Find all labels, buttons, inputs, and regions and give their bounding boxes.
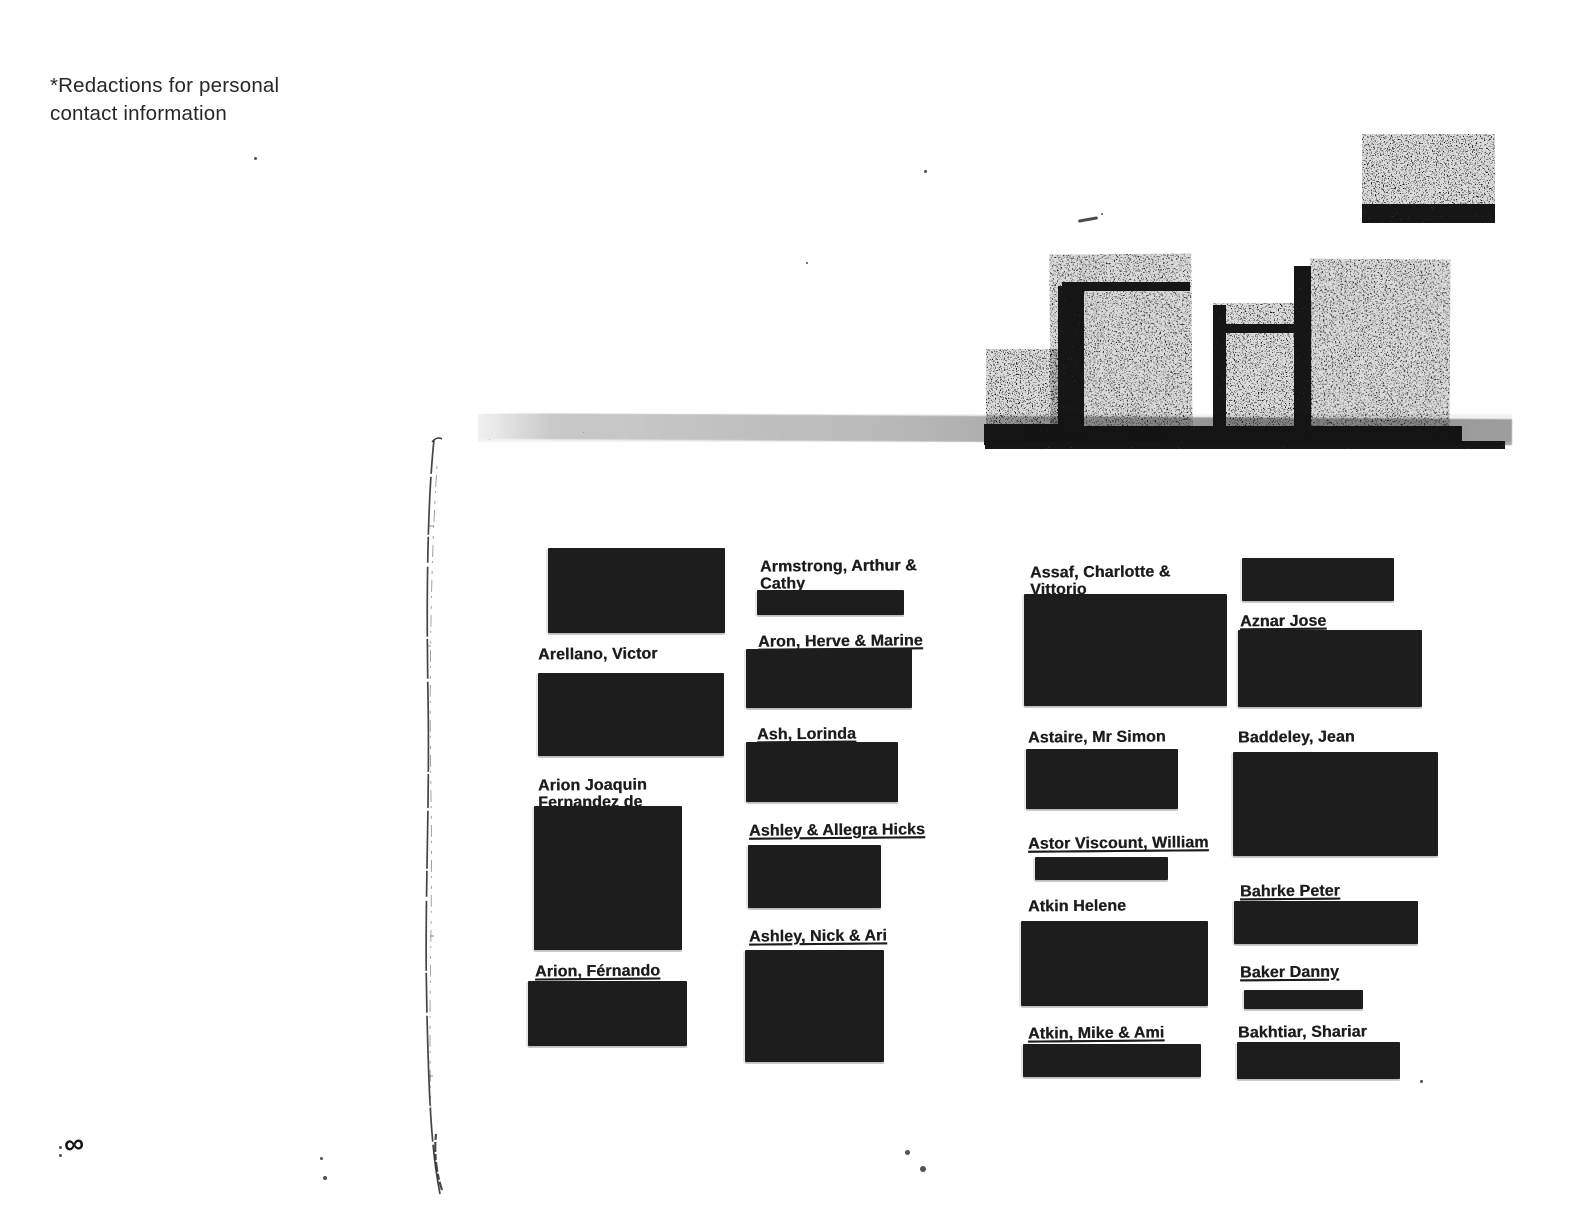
entry-name-label: Armstrong, Arthur &Cathy <box>760 557 917 592</box>
entry-name-label: Arion, Férnando <box>535 962 660 980</box>
redaction-box <box>1023 1044 1201 1077</box>
redaction-box <box>1021 921 1208 1006</box>
redaction-box <box>748 845 881 908</box>
directory-entries: Arellano, VictorArion JoaquinFernandez d… <box>0 0 1584 1224</box>
redaction-box <box>534 806 682 950</box>
entry-name-label: Ash, Lorinda <box>757 726 856 744</box>
entry-name-label: Bahrke Peter <box>1240 883 1340 901</box>
redaction-box <box>1244 990 1363 1009</box>
redaction-box <box>746 742 898 802</box>
redaction-box <box>1234 901 1418 944</box>
entry-name-label: Ashley, Nick & Ari <box>749 927 887 945</box>
redaction-box <box>1026 749 1178 809</box>
entry-name-label: Ashley & Allegra Hicks <box>749 821 925 840</box>
entry-name-label: Aznar Jose <box>1240 613 1327 631</box>
redaction-box <box>1237 1042 1400 1079</box>
redaction-box <box>1233 752 1438 856</box>
entry-name-label: Aron, Herve & Marine <box>758 632 923 650</box>
redaction-box <box>548 548 725 633</box>
redaction-box <box>1242 558 1394 601</box>
redaction-box <box>528 981 687 1046</box>
entry-name-label: Arellano, Victor <box>538 645 658 663</box>
page-marker: ∞ <box>62 1127 84 1161</box>
entry-name-label: Atkin, Mike & Ami <box>1028 1024 1164 1042</box>
redaction-box <box>746 649 912 708</box>
redaction-box <box>1035 857 1168 880</box>
redaction-box <box>757 590 904 615</box>
scanned-document-page: *Redactions for personal contact informa… <box>0 0 1584 1224</box>
entry-name-label: Astaire, Mr Simon <box>1028 728 1166 746</box>
entry-name-label: Baddeley, Jean <box>1238 728 1355 746</box>
entry-name-label: Bakhtiar, Shariar <box>1238 1023 1367 1041</box>
redaction-box <box>1238 630 1422 707</box>
redaction-box <box>1024 594 1227 706</box>
redaction-box <box>745 950 884 1062</box>
redaction-box <box>538 673 724 756</box>
entry-name-label: Astor Viscount, William <box>1028 834 1209 853</box>
entry-name-label: Baker Danny <box>1240 964 1339 982</box>
entry-name-label: Atkin Helene <box>1028 898 1126 916</box>
